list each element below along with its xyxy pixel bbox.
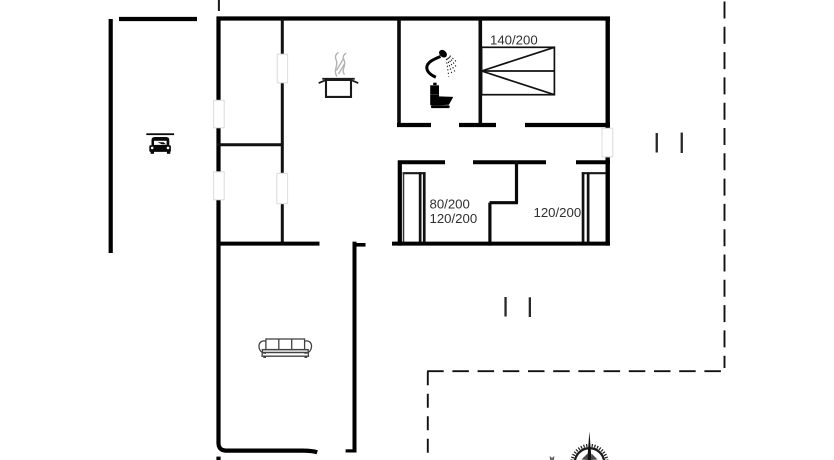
svg-text:80/200: 80/200	[430, 197, 470, 212]
svg-text:140/200: 140/200	[490, 33, 538, 48]
svg-text:120/200: 120/200	[430, 211, 478, 226]
svg-text:120/200: 120/200	[534, 205, 582, 220]
